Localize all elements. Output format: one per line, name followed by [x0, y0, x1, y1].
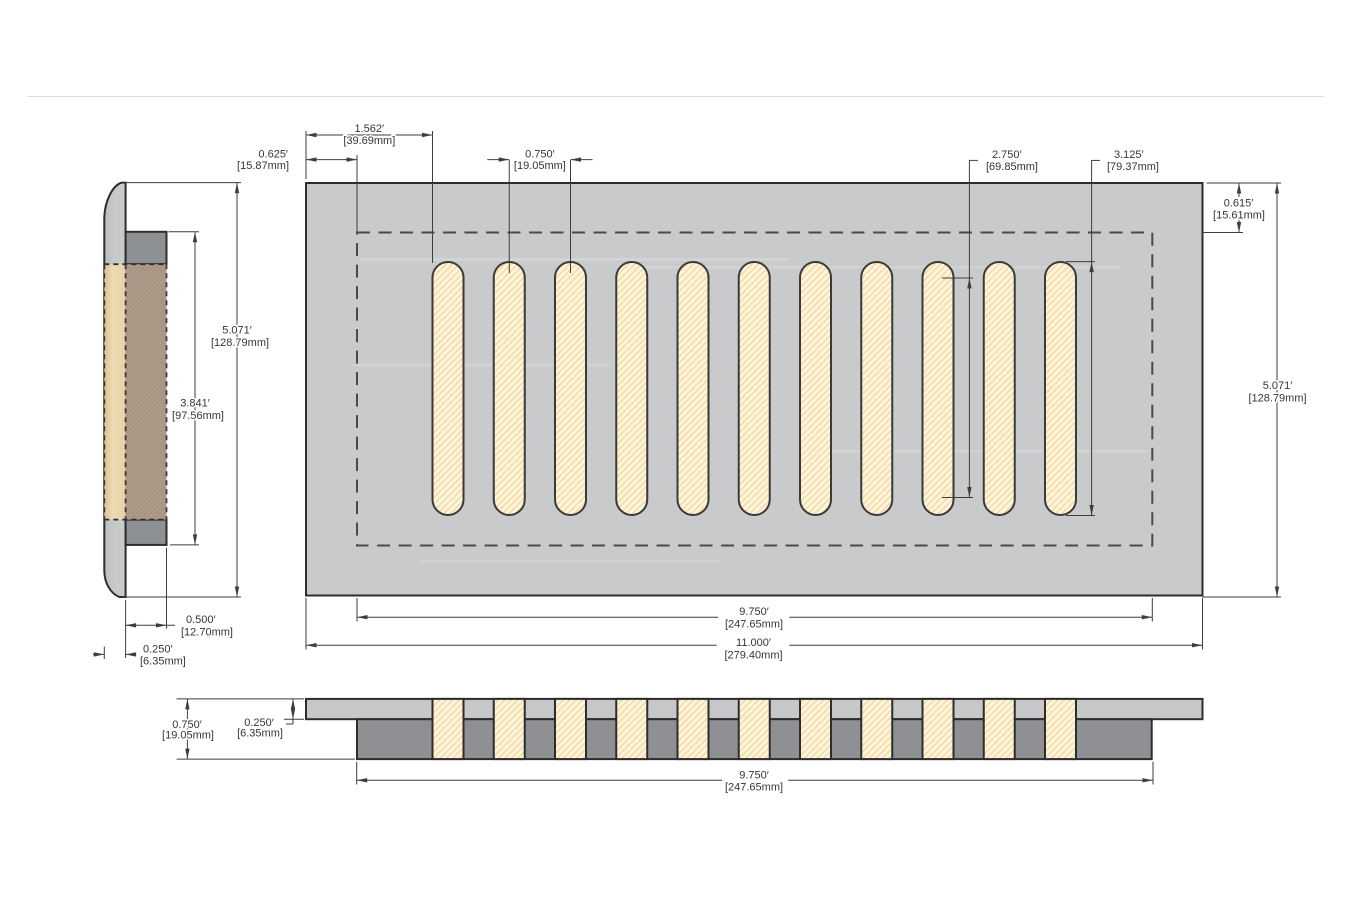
svg-text:2.750′: 2.750′ — [992, 149, 1022, 161]
svg-text:0.625′: 0.625′ — [258, 149, 288, 161]
svg-text:0.750′: 0.750′ — [525, 149, 555, 161]
svg-text:[79.37mm]: [79.37mm] — [1107, 161, 1159, 173]
svg-text:[279.40mm]: [279.40mm] — [724, 650, 782, 662]
svg-text:[39.69mm]: [39.69mm] — [343, 135, 395, 147]
svg-text:[97.56mm]: [97.56mm] — [172, 410, 224, 422]
svg-text:5.071′: 5.071′ — [1263, 380, 1293, 392]
svg-text:1.562′: 1.562′ — [355, 123, 385, 135]
svg-text:[247.65mm]: [247.65mm] — [725, 619, 783, 631]
svg-text:[128.79mm]: [128.79mm] — [211, 337, 269, 349]
svg-text:11.000′: 11.000′ — [736, 637, 771, 649]
svg-text:3.125′: 3.125′ — [1114, 149, 1144, 161]
svg-text:[247.65mm]: [247.65mm] — [725, 782, 783, 794]
svg-text:[15.87mm]: [15.87mm] — [237, 160, 289, 172]
svg-text:0.500′: 0.500′ — [186, 614, 216, 626]
svg-text:[6.35mm]: [6.35mm] — [237, 728, 283, 740]
svg-text:[19.05mm]: [19.05mm] — [162, 730, 214, 742]
svg-text:3.841′: 3.841′ — [180, 398, 210, 410]
svg-text:[69.85mm]: [69.85mm] — [986, 161, 1038, 173]
svg-text:9.750′: 9.750′ — [739, 770, 769, 782]
svg-text:0.250′: 0.250′ — [143, 644, 173, 656]
svg-text:[15.61mm]: [15.61mm] — [1213, 210, 1265, 222]
svg-text:[12.70mm]: [12.70mm] — [181, 627, 233, 639]
svg-text:5.071′: 5.071′ — [222, 325, 252, 337]
svg-text:0.615′: 0.615′ — [1224, 198, 1254, 210]
svg-text:[128.79mm]: [128.79mm] — [1248, 393, 1306, 405]
svg-text:9.750′: 9.750′ — [739, 606, 769, 618]
svg-text:[19.05mm]: [19.05mm] — [514, 160, 566, 172]
svg-text:[6.35mm]: [6.35mm] — [140, 656, 186, 668]
